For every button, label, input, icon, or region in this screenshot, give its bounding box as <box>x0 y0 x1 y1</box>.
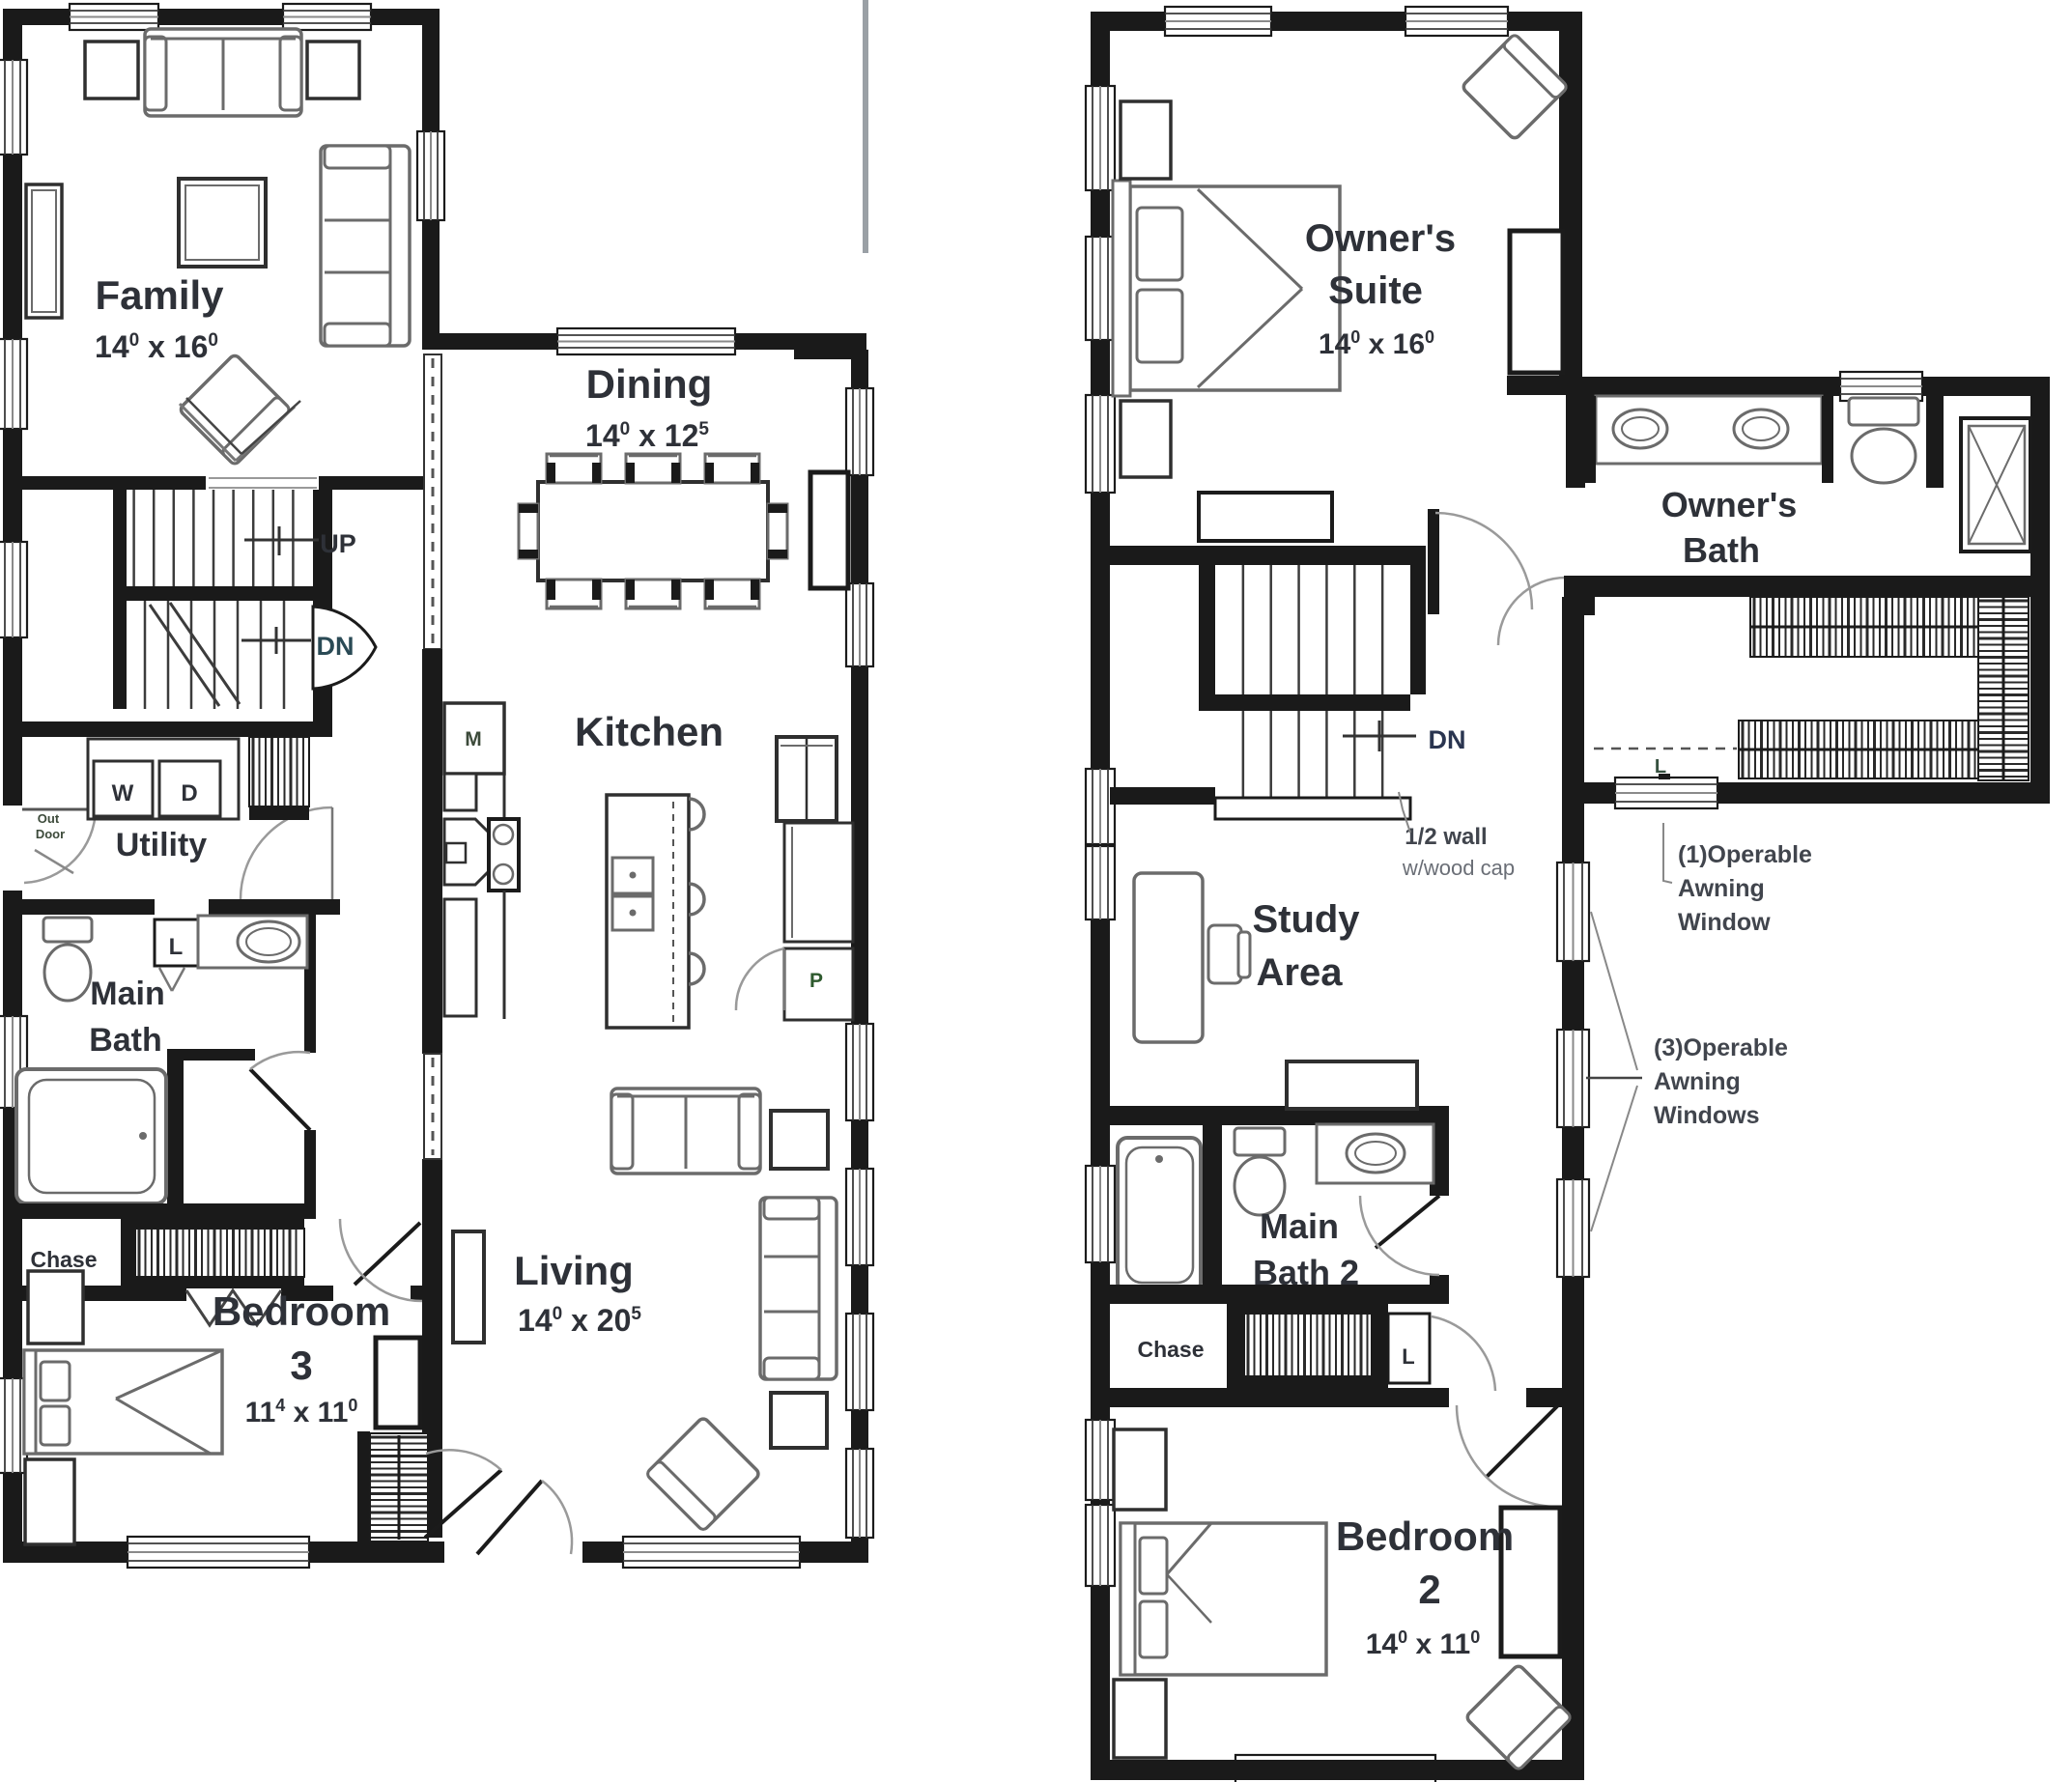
svg-text:Owner's: Owner's <box>1661 485 1798 524</box>
svg-text:3: 3 <box>290 1343 312 1388</box>
svg-text:Owner's: Owner's <box>1305 217 1456 260</box>
svg-text:Bedroom: Bedroom <box>213 1288 390 1334</box>
svg-text:Chase: Chase <box>1137 1337 1204 1362</box>
svg-text:Awning: Awning <box>1654 1068 1741 1095</box>
svg-text:D: D <box>181 780 197 806</box>
svg-text:Bath: Bath <box>89 1022 162 1059</box>
svg-text:Awning: Awning <box>1678 875 1765 902</box>
svg-text:140 x 110: 140 x 110 <box>1366 1627 1480 1660</box>
svg-text:DN: DN <box>1429 725 1466 754</box>
svg-text:UP: UP <box>320 529 356 558</box>
svg-text:Suite: Suite <box>1328 269 1423 312</box>
svg-text:Area: Area <box>1257 951 1344 994</box>
svg-text:114 x 110: 114 x 110 <box>245 1396 358 1428</box>
svg-text:DN: DN <box>317 632 355 661</box>
svg-text:w/wood cap: w/wood cap <box>1402 856 1515 880</box>
svg-text:Bedroom: Bedroom <box>1336 1513 1514 1559</box>
svg-text:Out: Out <box>38 811 60 826</box>
svg-text:Dining: Dining <box>586 361 713 407</box>
svg-text:2: 2 <box>1418 1567 1440 1612</box>
svg-text:140 x 205: 140 x 205 <box>518 1303 641 1338</box>
svg-text:Main: Main <box>90 976 164 1012</box>
svg-text:L: L <box>1402 1344 1414 1369</box>
svg-text:L: L <box>169 934 184 960</box>
svg-text:M: M <box>465 728 482 750</box>
svg-text:W: W <box>112 780 134 806</box>
svg-text:(1)Operable: (1)Operable <box>1678 841 1812 868</box>
svg-text:Study: Study <box>1252 898 1360 941</box>
svg-text:1/2 wall: 1/2 wall <box>1405 824 1487 850</box>
svg-text:P: P <box>809 970 823 992</box>
svg-text:Door: Door <box>36 827 65 841</box>
svg-text:Living: Living <box>514 1248 634 1293</box>
svg-text:Chase: Chase <box>30 1247 97 1272</box>
svg-text:Bath: Bath <box>1683 530 1760 570</box>
svg-text:140 x 160: 140 x 160 <box>95 329 218 364</box>
svg-text:Window: Window <box>1678 909 1771 936</box>
svg-text:(3)Operable: (3)Operable <box>1654 1034 1788 1061</box>
svg-text:Windows: Windows <box>1654 1102 1760 1129</box>
svg-text:Family: Family <box>95 272 224 318</box>
svg-text:Kitchen: Kitchen <box>575 709 724 754</box>
svg-text:140 x 160: 140 x 160 <box>1319 327 1434 360</box>
svg-text:Main: Main <box>1260 1206 1339 1246</box>
svg-text:Utility: Utility <box>116 827 208 863</box>
svg-text:140 x 125: 140 x 125 <box>585 418 709 453</box>
